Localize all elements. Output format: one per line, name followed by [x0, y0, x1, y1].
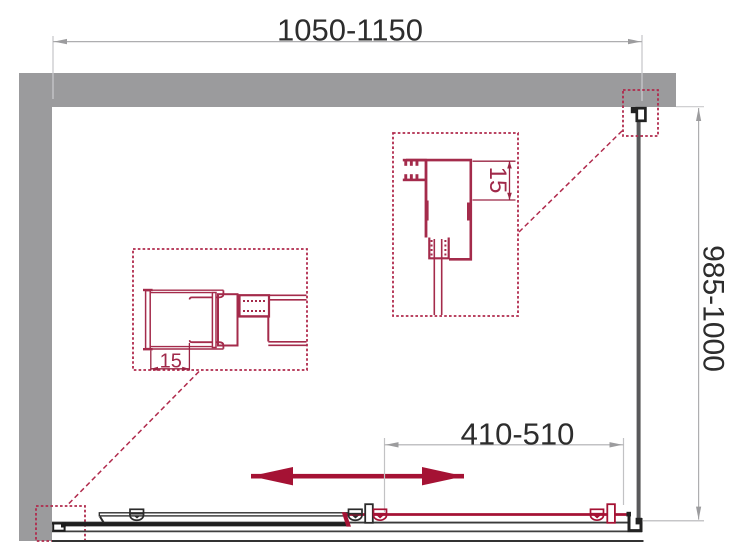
svg-text:15: 15	[160, 351, 182, 373]
svg-text:985-1000: 985-1000	[697, 245, 730, 372]
svg-text:410-510: 410-510	[461, 417, 575, 452]
svg-text:1050-1150: 1050-1150	[277, 13, 423, 48]
svg-text:15: 15	[484, 167, 511, 194]
